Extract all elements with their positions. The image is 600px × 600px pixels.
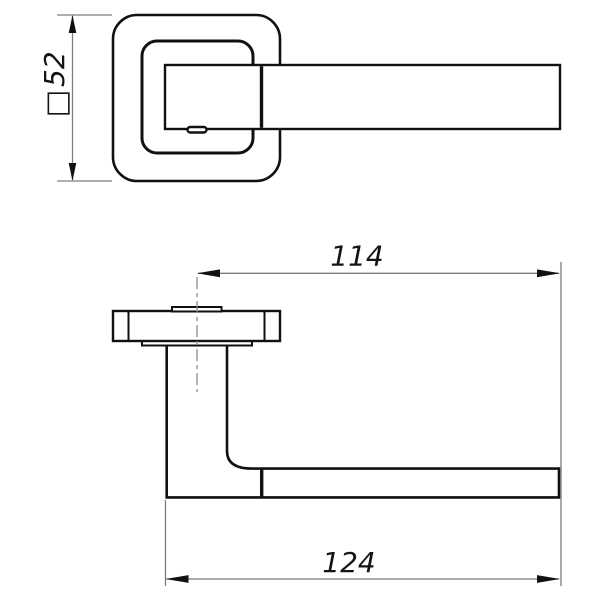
front-view xyxy=(113,15,560,181)
arrowhead-right-124 xyxy=(537,575,560,583)
dimension-center-to-tip: 114 xyxy=(197,240,561,587)
side-view xyxy=(113,277,559,497)
arrowhead-down xyxy=(69,163,77,181)
lever-side-profile xyxy=(167,345,559,497)
lever-detent-notch xyxy=(188,127,207,133)
square-symbol: □ xyxy=(45,84,72,118)
dimension-overall-length: 124 xyxy=(166,500,561,586)
dimension-value-124: 124 xyxy=(322,546,375,579)
arrowhead-left-124 xyxy=(166,575,189,583)
dimension-rose-square: 52 □ xyxy=(38,15,112,181)
dimension-value-52: 52 xyxy=(38,51,71,87)
dimension-value-114: 114 xyxy=(330,240,383,273)
arrowhead-left-114 xyxy=(197,269,220,277)
door-handle-drawing: 52 □ 114 124 xyxy=(0,0,600,600)
arrowhead-up xyxy=(69,15,77,33)
arrowhead-right-114 xyxy=(537,269,560,277)
lever-bar-front xyxy=(165,65,560,129)
technical-drawing-canvas: 52 □ 114 124 xyxy=(0,0,600,600)
